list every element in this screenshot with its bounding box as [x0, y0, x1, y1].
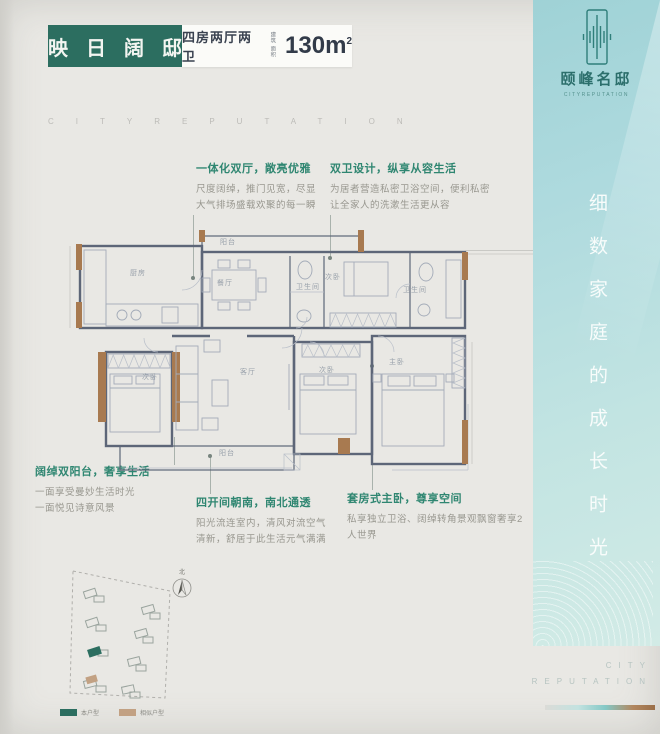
annotation-title: 套房式主卧，尊享空间	[347, 490, 532, 506]
annotation-body: 一面享受曼妙生活时光 一面悦见诗意风景	[35, 485, 195, 517]
legend-swatch-green	[60, 709, 77, 716]
room-label-balcony-top: 阳台	[220, 237, 236, 247]
floorplan-drawing: 厨房 阳台 餐厅 卫生间 次卧 卫生间 次卧 客厅 次卧 主卧 阳台	[62, 224, 540, 476]
area-label: 建筑 面积	[270, 32, 282, 60]
annotation-body: 阳光流连室内，清风对流空气 清新，舒居于此生活元气满满	[196, 516, 358, 548]
gradient-bar-decor	[545, 705, 655, 710]
dimension-line	[465, 250, 535, 251]
title-char: 邸	[162, 32, 182, 61]
legend-label: 相似户型	[140, 708, 164, 717]
room-label-bedroom-top: 次卧	[325, 272, 341, 282]
compass-north-label: 北	[179, 568, 185, 576]
room-label-balcony-bottom: 阳台	[219, 448, 235, 458]
legend-label: 本户型	[81, 708, 99, 717]
annotation-master-suite: 套房式主卧，尊享空间 私享独立卫浴、阔绰转角景观飘窗奢享2人世界	[347, 490, 532, 544]
title-char: 阔	[124, 32, 144, 61]
legend-swatch-tan	[119, 709, 136, 716]
title-char: 映	[48, 32, 68, 61]
room-label-bath-1: 卫生间	[296, 282, 320, 292]
brand-name-zh: 颐峰名邸	[533, 68, 660, 89]
siteplan-svg: 北	[50, 556, 220, 704]
annotation-title: 四开间朝南，南北通透	[196, 494, 358, 510]
vertical-slogan: 细数家庭的成长时光	[583, 193, 610, 580]
title-char: 日	[86, 32, 106, 61]
left-edge-shadow	[0, 0, 14, 734]
floorplan-poster: 映 日 阔 邸 四房两厅两卫 建筑 面积 130m2 CITYREPUTATIO…	[0, 0, 660, 734]
annotation-dual-hall: 一体化双厅，敞亮优雅 尺度阔绰，推门见宽，尽显 大气排场盛载欢聚的每一瞬	[196, 160, 346, 214]
brand-logo: 颐峰名邸 CITYREPUTATION	[533, 8, 660, 98]
legend-item-this-unit: 本户型	[60, 708, 99, 717]
legend-item-similar-unit: 相似户型	[119, 708, 164, 717]
annotation-dual-bath: 双卫设计，纵享从容生活 为居者营造私密卫浴空间，便利私密 让全家人的洗漱生活更从…	[330, 160, 520, 214]
siteplan-legend: 本户型 相似户型	[60, 708, 164, 717]
room-label-bedroom-left: 次卧	[142, 372, 158, 382]
annotation-body: 私享独立卫浴、阔绰转角景观飘窗奢享2人世界	[347, 512, 532, 544]
room-label-bath-2: 卫生间	[403, 285, 427, 295]
unit-title-box: 映 日 阔 邸	[48, 25, 182, 67]
unit-layout-text: 四房两厅两卫	[182, 27, 263, 65]
annotation-title: 双卫设计，纵享从容生活	[330, 160, 520, 176]
room-label-kitchen: 厨房	[130, 268, 146, 278]
soundwave-logo-icon	[573, 8, 621, 66]
floorplan-svg	[62, 224, 540, 476]
brand-panel: 颐峰名邸 CITYREPUTATION 细数家庭的成长时光	[533, 0, 660, 646]
room-label-dining: 餐厅	[217, 278, 233, 288]
room-label-bedroom-mid: 次卧	[319, 365, 335, 375]
annotation-title: 一体化双厅，敞亮优雅	[196, 160, 346, 176]
annotation-body: 尺度阔绰，推门见宽，尽显 大气排场盛载欢聚的每一瞬	[196, 182, 346, 214]
room-label-master: 主卧	[389, 357, 405, 367]
brand-name-en: CITYREPUTATION	[533, 92, 660, 98]
annotation-body: 为居者营造私密卫浴空间，便利私密 让全家人的洗漱生活更从容	[330, 182, 520, 214]
siteplan-map: 北	[50, 556, 220, 704]
unit-spec-box: 四房两厅两卫 建筑 面积 130m2	[182, 25, 352, 67]
footer-line-city: CITY	[430, 658, 652, 674]
area-value: 130m2	[285, 34, 352, 58]
room-label-living: 客厅	[240, 367, 256, 377]
annotation-south-facing: 四开间朝南，南北通透 阳光流连室内，清风对流空气 清新，舒居于此生活元气满满	[196, 494, 358, 548]
footer-brand-text: CITY REPUTATION	[430, 658, 652, 690]
watermark-text: CITYREPUTATION	[48, 117, 468, 126]
footer-line-reputation: REPUTATION	[430, 674, 652, 690]
